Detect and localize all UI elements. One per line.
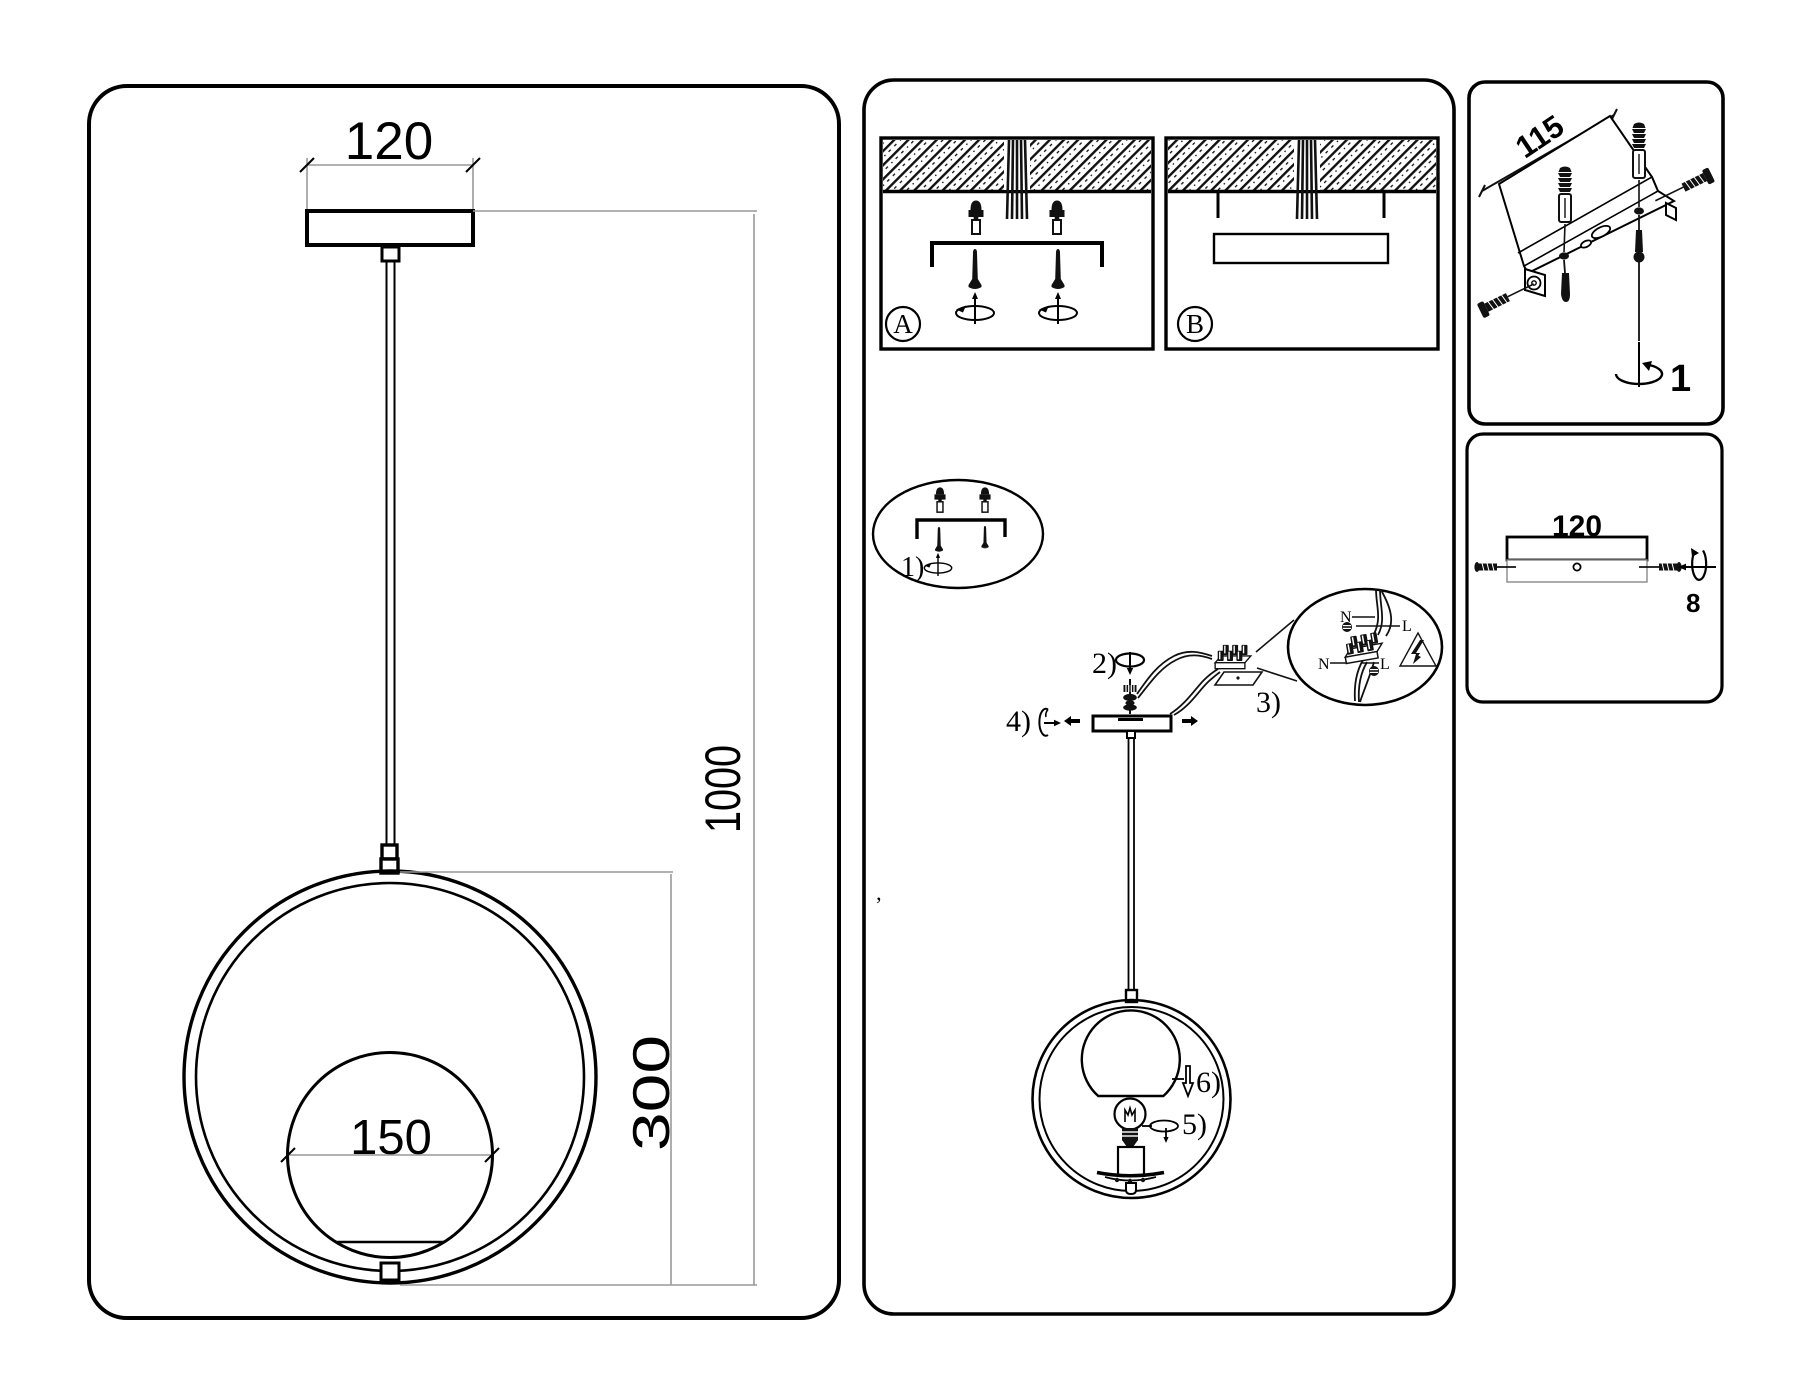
svg-text:300: 300 [623,1035,681,1151]
svg-text:L: L [1402,618,1412,635]
svg-text:L: L [1380,656,1390,673]
svg-text:5): 5) [1182,1108,1207,1141]
svg-text:1): 1) [901,552,924,583]
svg-text:1: 1 [1670,358,1691,400]
svg-text:N: N [1318,656,1330,673]
svg-text:3): 3) [1256,686,1281,719]
svg-text:A: A [893,309,913,339]
svg-text:4): 4) [1006,705,1031,738]
svg-text:120: 120 [345,112,433,171]
svg-text:150: 150 [350,1111,432,1165]
svg-text:2): 2) [1092,647,1117,680]
svg-text:6): 6) [1196,1066,1221,1099]
svg-text:’: ’ [875,892,882,917]
svg-text:1000: 1000 [695,745,751,833]
svg-text:8: 8 [1686,588,1700,618]
svg-text:B: B [1186,309,1204,339]
